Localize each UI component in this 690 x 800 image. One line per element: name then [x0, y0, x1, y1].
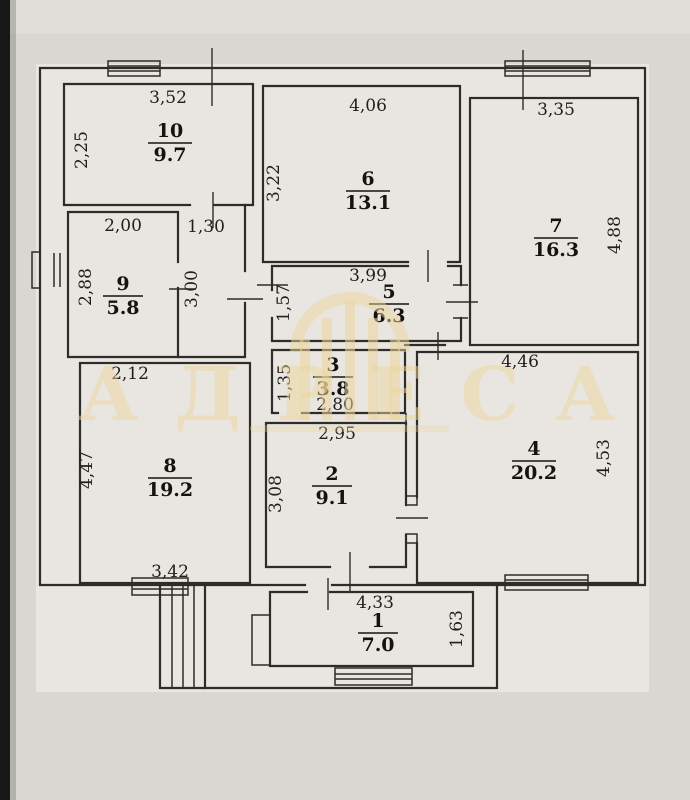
room-7-area: 16.3: [533, 239, 579, 261]
room-10-number: 10: [157, 120, 183, 142]
room-1-number: 1: [371, 610, 384, 632]
room-5-number: 5: [382, 281, 395, 303]
floor-plan-photo: 3,52 2,25 10 9.7 2,00 2,88 9 5.8 1,30 3,…: [0, 0, 690, 800]
room-10-dim-top: 3,52: [149, 88, 187, 108]
room-2-number: 2: [325, 463, 338, 485]
room-2-area: 9.1: [315, 487, 348, 509]
room-8-area: 19.2: [147, 479, 193, 501]
photo-edge-shadow: [0, 0, 10, 800]
room-9-area: 5.8: [106, 297, 139, 319]
room-2-dim-left: 3,08: [266, 475, 286, 513]
photo-top-light-band: [0, 0, 690, 34]
room-7-dim-top: 3,35: [537, 100, 575, 120]
room-6-number: 6: [361, 168, 374, 190]
room-7-number: 7: [549, 215, 562, 237]
floor-plan-svg: 3,52 2,25 10 9.7 2,00 2,88 9 5.8 1,30 3,…: [0, 0, 690, 800]
corridor-dim-length: 3,00: [182, 270, 202, 308]
room-7-dim-right: 4,88: [605, 216, 625, 254]
watermark-tagline-blur: [250, 425, 450, 432]
room-10-area: 9.7: [153, 144, 186, 166]
room-6-dim-left: 3,22: [264, 164, 284, 202]
room-4-dim-right: 4,53: [594, 439, 614, 477]
room-1-area: 7.0: [361, 634, 394, 656]
room-1-dim-right: 1,63: [447, 610, 467, 648]
room-6-dim-top: 4,06: [349, 96, 387, 116]
room-10-dim-left: 2,25: [72, 131, 92, 169]
room-8-dim-bottom: 3,42: [151, 562, 189, 582]
room-9-dim-top: 2,00: [104, 216, 142, 236]
room-5-dim-top: 3,99: [349, 266, 387, 286]
room-4-number: 4: [527, 438, 540, 460]
room-4-area: 20.2: [511, 462, 557, 484]
room-9-number: 9: [116, 273, 129, 295]
room-9-dim-left: 2,88: [76, 268, 96, 306]
corridor-dim-width: 1,30: [187, 217, 225, 237]
photo-edge-soft-shadow: [10, 0, 16, 800]
room-8-dim-left: 4,47: [77, 451, 97, 489]
room-5-dim-left: 1,57: [274, 284, 294, 322]
room-8-number: 8: [163, 455, 176, 477]
room-6-area: 13.1: [345, 192, 391, 214]
